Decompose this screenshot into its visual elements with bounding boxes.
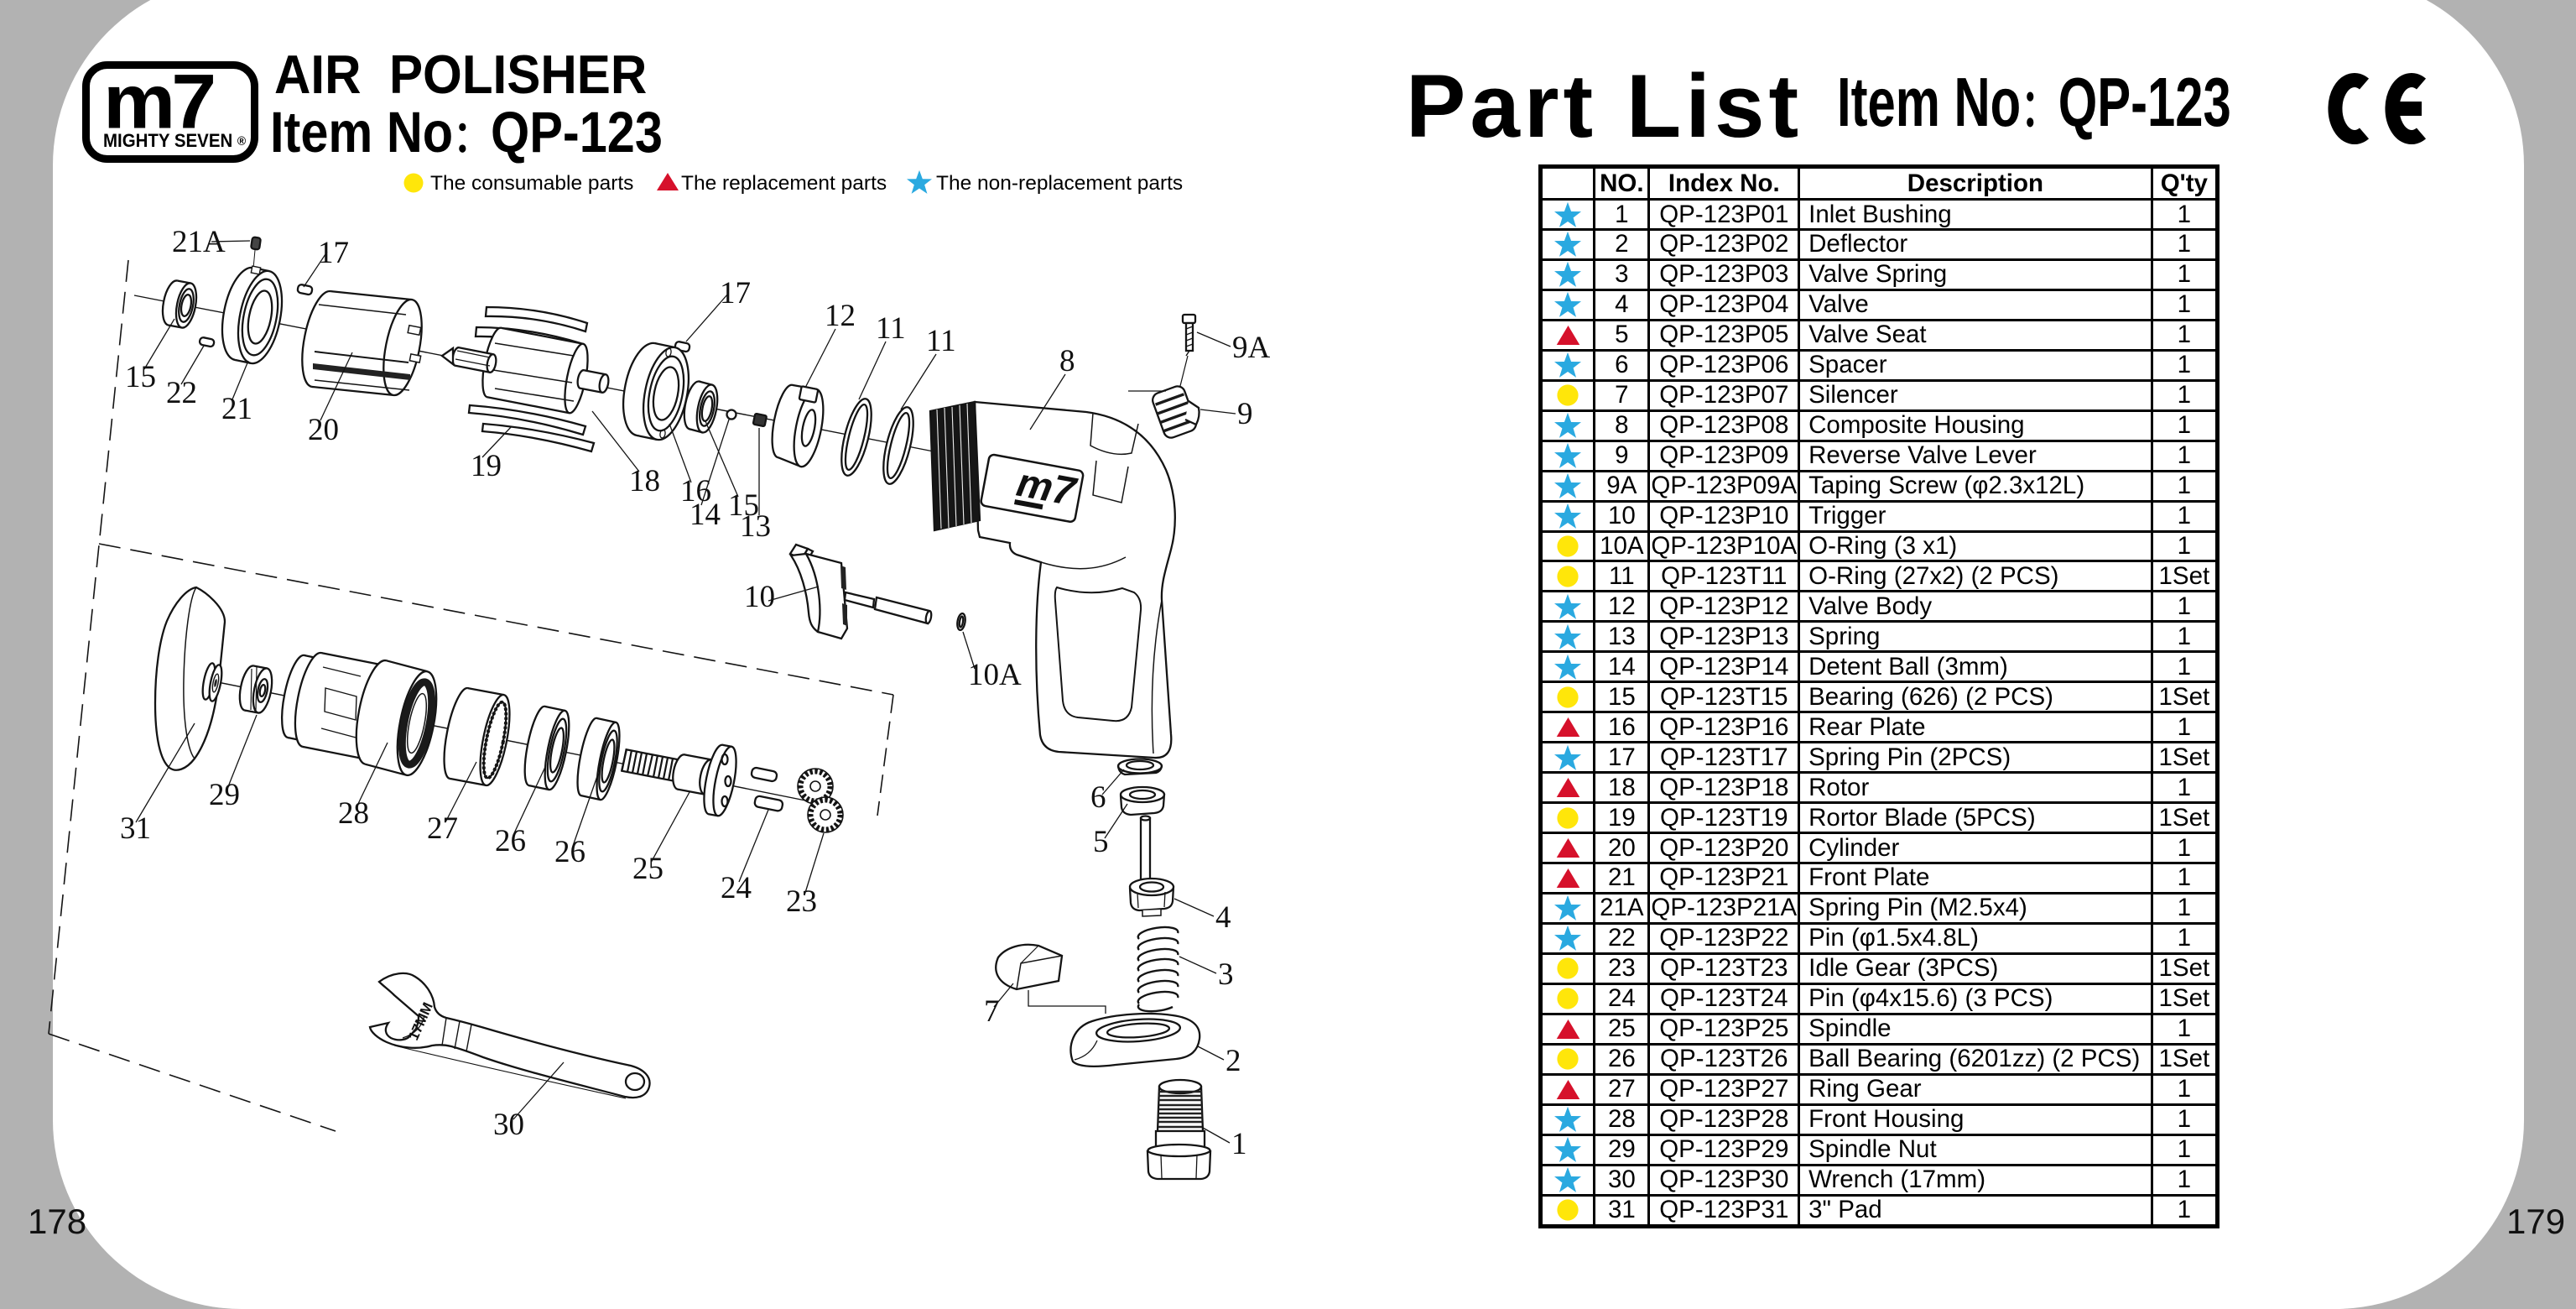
- svg-text:14: 14: [690, 498, 721, 532]
- svg-text:10A: 10A: [968, 658, 1022, 692]
- svg-text:18: 18: [629, 464, 660, 498]
- svg-text:10: 10: [744, 580, 775, 614]
- svg-text:28: 28: [338, 796, 369, 831]
- svg-text:9A: 9A: [1232, 331, 1271, 365]
- svg-text:29: 29: [209, 778, 240, 812]
- svg-text:7: 7: [984, 994, 1000, 1029]
- svg-text:11: 11: [876, 311, 906, 346]
- svg-text:21: 21: [221, 392, 252, 426]
- svg-text:26: 26: [554, 835, 585, 869]
- svg-text:15: 15: [125, 360, 156, 394]
- svg-text:27: 27: [427, 811, 458, 846]
- svg-text:1: 1: [1231, 1127, 1247, 1161]
- svg-text:2: 2: [1226, 1044, 1241, 1078]
- svg-text:21A: 21A: [172, 225, 226, 259]
- svg-text:25: 25: [632, 852, 664, 886]
- svg-text:11: 11: [926, 324, 956, 358]
- svg-text:4: 4: [1215, 900, 1231, 935]
- svg-text:5: 5: [1093, 825, 1109, 859]
- svg-text:17: 17: [318, 236, 349, 270]
- svg-text:9: 9: [1237, 397, 1253, 431]
- svg-text:20: 20: [308, 413, 339, 447]
- svg-text:8: 8: [1059, 344, 1075, 378]
- svg-text:26: 26: [495, 824, 526, 858]
- svg-text:3: 3: [1218, 957, 1234, 992]
- svg-text:12: 12: [825, 299, 856, 333]
- svg-text:6: 6: [1090, 780, 1106, 815]
- svg-text:24: 24: [721, 871, 752, 905]
- svg-text:31: 31: [120, 811, 151, 846]
- svg-text:17: 17: [720, 276, 751, 310]
- svg-text:23: 23: [786, 884, 817, 919]
- svg-text:13: 13: [740, 509, 771, 544]
- svg-text:22: 22: [166, 376, 197, 410]
